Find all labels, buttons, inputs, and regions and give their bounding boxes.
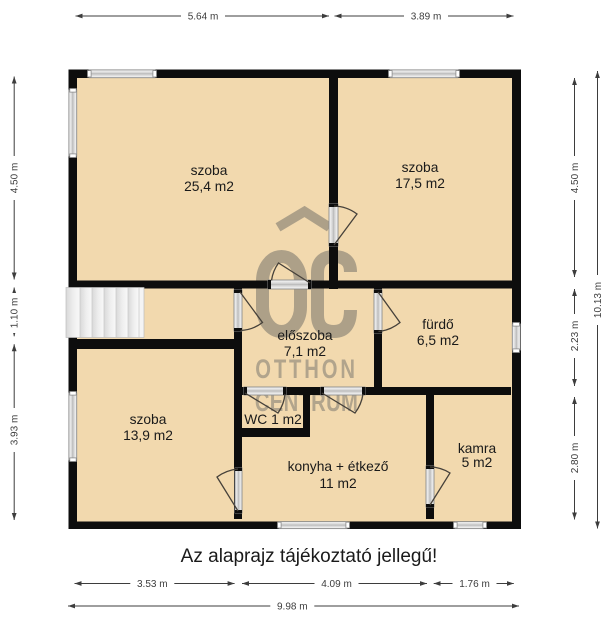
svg-text:9.98 m: 9.98 m xyxy=(277,602,308,613)
svg-text:kamra: kamra xyxy=(458,441,497,456)
svg-text:3.93 m: 3.93 m xyxy=(10,415,21,446)
svg-text:5 m2: 5 m2 xyxy=(462,455,493,470)
svg-text:1.76 m: 1.76 m xyxy=(459,579,490,590)
svg-text:2.80 m: 2.80 m xyxy=(570,443,581,474)
svg-text:fürdő: fürdő xyxy=(422,317,454,332)
svg-text:13,9 m2: 13,9 m2 xyxy=(123,428,173,443)
svg-text:1.10 m: 1.10 m xyxy=(10,298,21,329)
svg-text:4.50 m: 4.50 m xyxy=(10,163,21,194)
svg-text:17,5 m2: 17,5 m2 xyxy=(395,176,445,191)
svg-text:konyha + étkező: konyha + étkező xyxy=(288,459,389,474)
svg-text:7,1 m2: 7,1 m2 xyxy=(284,344,326,359)
svg-text:5.64 m: 5.64 m xyxy=(188,12,219,23)
svg-text:6,5 m2: 6,5 m2 xyxy=(417,333,459,348)
svg-text:WC 1 m2: WC 1 m2 xyxy=(244,412,302,427)
svg-text:3.53 m: 3.53 m xyxy=(137,579,168,590)
svg-text:3.89 m: 3.89 m xyxy=(411,12,442,23)
svg-text:4.50 m: 4.50 m xyxy=(570,163,581,194)
svg-text:szoba: szoba xyxy=(402,160,439,175)
svg-text:2.23 m: 2.23 m xyxy=(570,321,581,352)
svg-text:11 m2: 11 m2 xyxy=(319,476,356,491)
svg-text:4.09 m: 4.09 m xyxy=(321,579,352,590)
svg-text:25,4 m2: 25,4 m2 xyxy=(184,179,234,194)
svg-text:szoba: szoba xyxy=(130,412,167,427)
svg-text:szoba: szoba xyxy=(191,163,228,178)
svg-text:Az alaprajz tájékoztató jelleg: Az alaprajz tájékoztató jellegű! xyxy=(181,546,438,567)
svg-text:előszoba: előszoba xyxy=(277,328,333,343)
svg-text:10.13 m: 10.13 m xyxy=(593,282,604,318)
